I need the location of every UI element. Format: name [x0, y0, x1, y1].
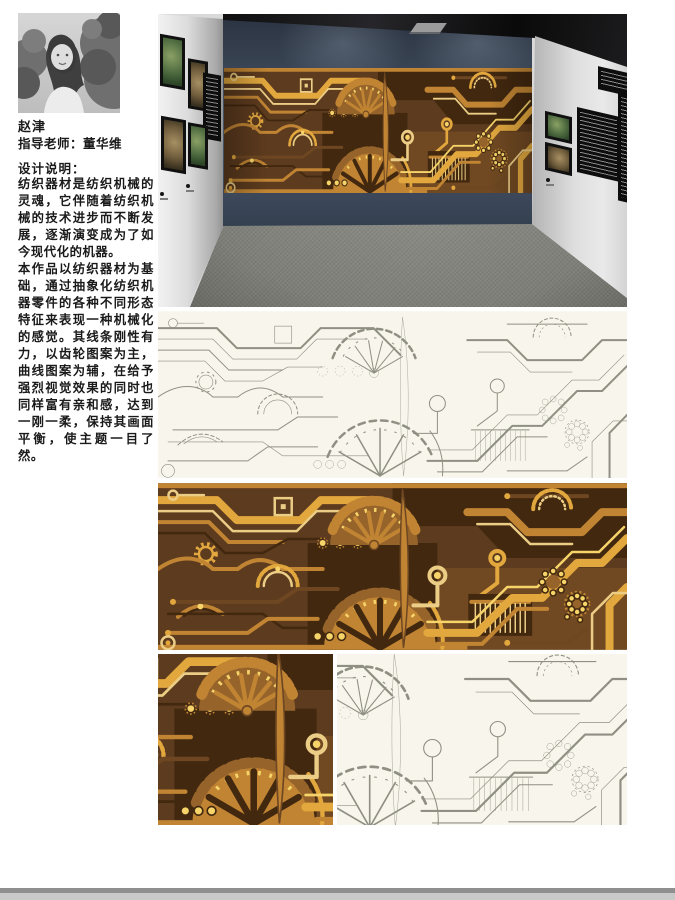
picture-frame: [161, 116, 186, 174]
wall-text-panel: [577, 107, 620, 182]
mural-lineart-full: [158, 311, 627, 478]
exhibit-label: [186, 184, 196, 198]
page-footer-bar-light: [0, 893, 675, 900]
mural-lighting-shade: [224, 68, 532, 193]
picture-frame: [160, 34, 185, 90]
design-note-text: 纺织器材是纺织机械的灵魂，它伴随着纺织机械的技术进步而不断发展，逐渐演变成为了如…: [18, 176, 154, 465]
design-note-title: 设计说明：: [18, 158, 86, 177]
picture-frame: [545, 142, 572, 176]
design-note-paragraph-2: 本作品以纺织器材为基础，通过抽象化纺织机器零件的各种不同形态特征来表现一种机械化…: [18, 261, 154, 465]
mural-color-full: [158, 483, 627, 650]
portrait-illustration: [18, 13, 120, 113]
portfolio-page: 赵津 指导老师：董华维 设计说明： 纺织器材是纺织机械的灵魂，它伴随着纺织机械的…: [0, 0, 675, 900]
exhibition-room-render: [158, 14, 627, 307]
exhibit-label: [160, 192, 170, 206]
mural-color-detail: [158, 654, 333, 825]
advisor-name: 指导老师：董华维: [18, 133, 122, 152]
picture-frame: [188, 122, 208, 170]
design-note-paragraph-1: 纺织器材是纺织机械的灵魂，它伴随着纺织机械的技术进步而不断发展，逐渐演变成为了如…: [18, 176, 154, 261]
mural-lineart-detail: [337, 654, 627, 825]
wall-text-panel: [618, 92, 627, 203]
student-photo: [18, 13, 120, 113]
exhibit-label: [546, 178, 556, 192]
